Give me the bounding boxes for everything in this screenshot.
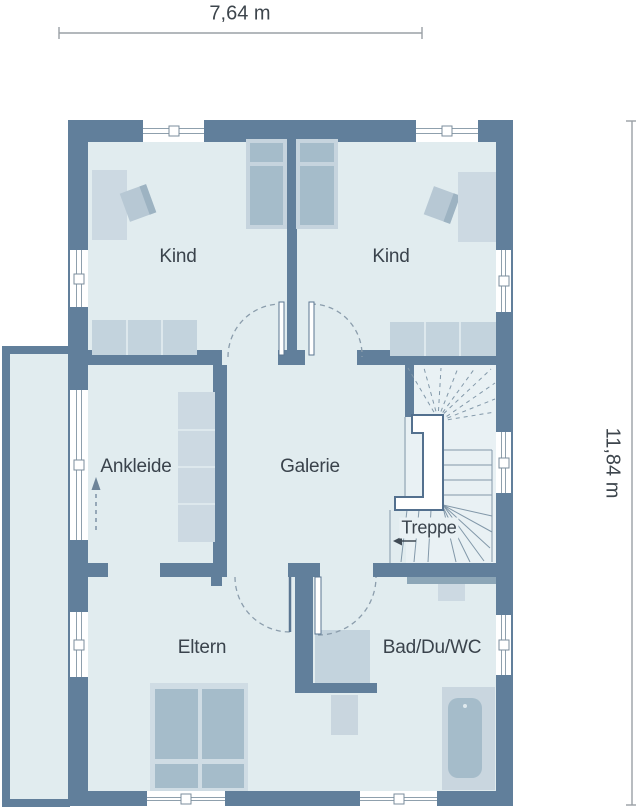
window-handle (181, 793, 192, 804)
sideboard-divider (126, 320, 128, 355)
bed-pillow (250, 143, 283, 162)
sideboard-divider (161, 320, 163, 355)
window-handle (74, 639, 85, 650)
balcony (2, 346, 70, 807)
sink (438, 584, 465, 601)
room-label-kind-left: Kind (159, 246, 196, 268)
bathtub-basin (448, 698, 482, 778)
window-handle (393, 793, 404, 804)
toilet (331, 695, 358, 735)
bathtub-drain (463, 704, 467, 708)
window (360, 791, 437, 806)
shower (315, 630, 370, 683)
wardrobe-divider (178, 429, 215, 431)
right-dimension-line (626, 121, 636, 805)
wall-eltern-bad (295, 563, 313, 693)
wall-lower-left-nib (211, 577, 222, 586)
window-handle (498, 457, 509, 468)
sideboard-divider (459, 322, 461, 356)
window-handle (498, 640, 509, 651)
sideboard (390, 322, 496, 356)
window-handle (74, 460, 85, 471)
room-label-bad: Bad/Du/WC (383, 637, 482, 659)
window-handle (442, 126, 453, 137)
wall-ankleide-right (213, 365, 227, 563)
window (70, 250, 88, 307)
wall-lower-left (160, 563, 227, 577)
width-dimension-label: 7,64 m (209, 3, 270, 26)
wardrobe (92, 170, 127, 240)
wardrobe-divider (178, 466, 215, 468)
wall-stair-stub (405, 365, 414, 417)
window (143, 120, 204, 142)
wardrobe (458, 172, 496, 242)
window-handle (74, 273, 85, 284)
vanity-counter (407, 577, 496, 584)
top-dimension-line (59, 27, 422, 39)
window-handle (498, 276, 509, 287)
room-label-kind-right: Kind (372, 246, 409, 268)
bed-pillow (300, 143, 334, 162)
bed-mattress (250, 166, 283, 225)
bed-mattress (300, 166, 334, 225)
window (416, 120, 478, 142)
room-label-treppe: Treppe (399, 518, 458, 539)
bed-mattress (155, 689, 198, 759)
bed-pillow (155, 764, 198, 788)
height-dimension-label: 11,84 m (601, 428, 624, 499)
room-label-ankleide: Ankleide (100, 456, 171, 478)
room-label-eltern: Eltern (178, 637, 226, 659)
window (496, 615, 511, 675)
sideboard (92, 320, 197, 355)
bed-mattress (202, 689, 244, 759)
window-handle (168, 126, 179, 137)
window (496, 432, 511, 493)
wall-shower-partition (313, 683, 377, 693)
balcony-door (70, 390, 88, 540)
window (147, 791, 225, 806)
wall-mid-stub (278, 350, 305, 365)
sideboard-divider (424, 322, 426, 356)
bed-pillow (202, 764, 244, 788)
wall-lower-left-stub (88, 563, 108, 577)
window (70, 612, 88, 677)
room-label-galerie: Galerie (280, 456, 340, 478)
wall-lower-right (373, 563, 496, 577)
wardrobe-divider (178, 503, 215, 505)
window (496, 250, 511, 312)
floor-plan: Kind Kind Ankleide Galerie Treppe Eltern… (0, 0, 636, 809)
